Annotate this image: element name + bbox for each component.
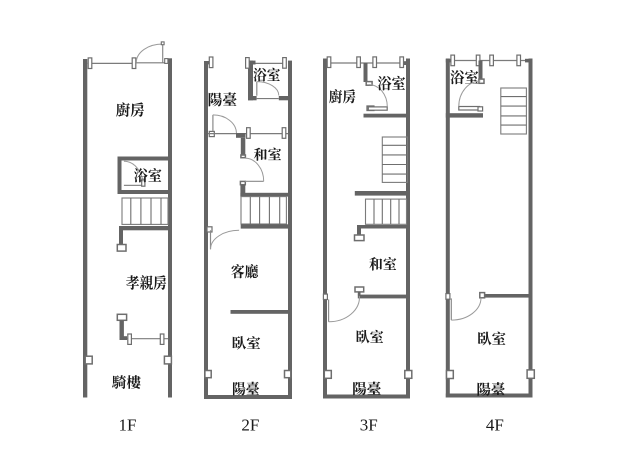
svg-text:4F: 4F [486, 415, 504, 434]
svg-text:2F: 2F [241, 415, 259, 434]
svg-text:1F: 1F [119, 415, 137, 434]
svg-text:3F: 3F [360, 415, 378, 434]
